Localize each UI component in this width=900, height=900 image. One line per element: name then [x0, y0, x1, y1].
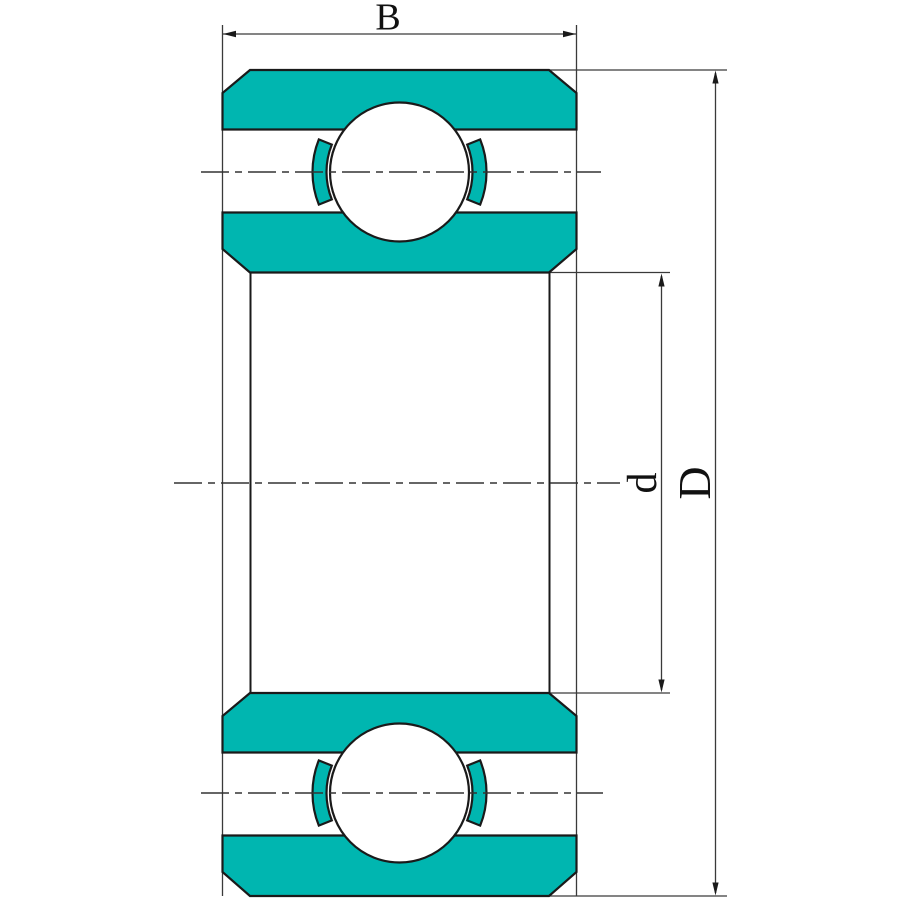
label-width-b: B: [375, 0, 400, 39]
bearing-cross-section-drawing: B d D: [0, 0, 900, 900]
label-outer-diameter-d: D: [669, 466, 720, 499]
dimension-d-outer: D: [669, 71, 720, 896]
dimension-d-bore: d: [620, 274, 666, 693]
dimension-b: B: [223, 0, 576, 39]
arrow-b-left-icon: [223, 31, 236, 37]
arrow-d-outer-top-icon: [712, 71, 718, 84]
arrow-d-bore-bottom-icon: [658, 680, 664, 693]
arrow-b-right-icon: [563, 31, 576, 37]
bearing-drawing-canvas: B d D: [0, 0, 900, 900]
arrow-d-bore-top-icon: [658, 274, 664, 287]
arrow-d-outer-bottom-icon: [712, 883, 718, 896]
label-bore-diameter-d: d: [620, 473, 666, 494]
